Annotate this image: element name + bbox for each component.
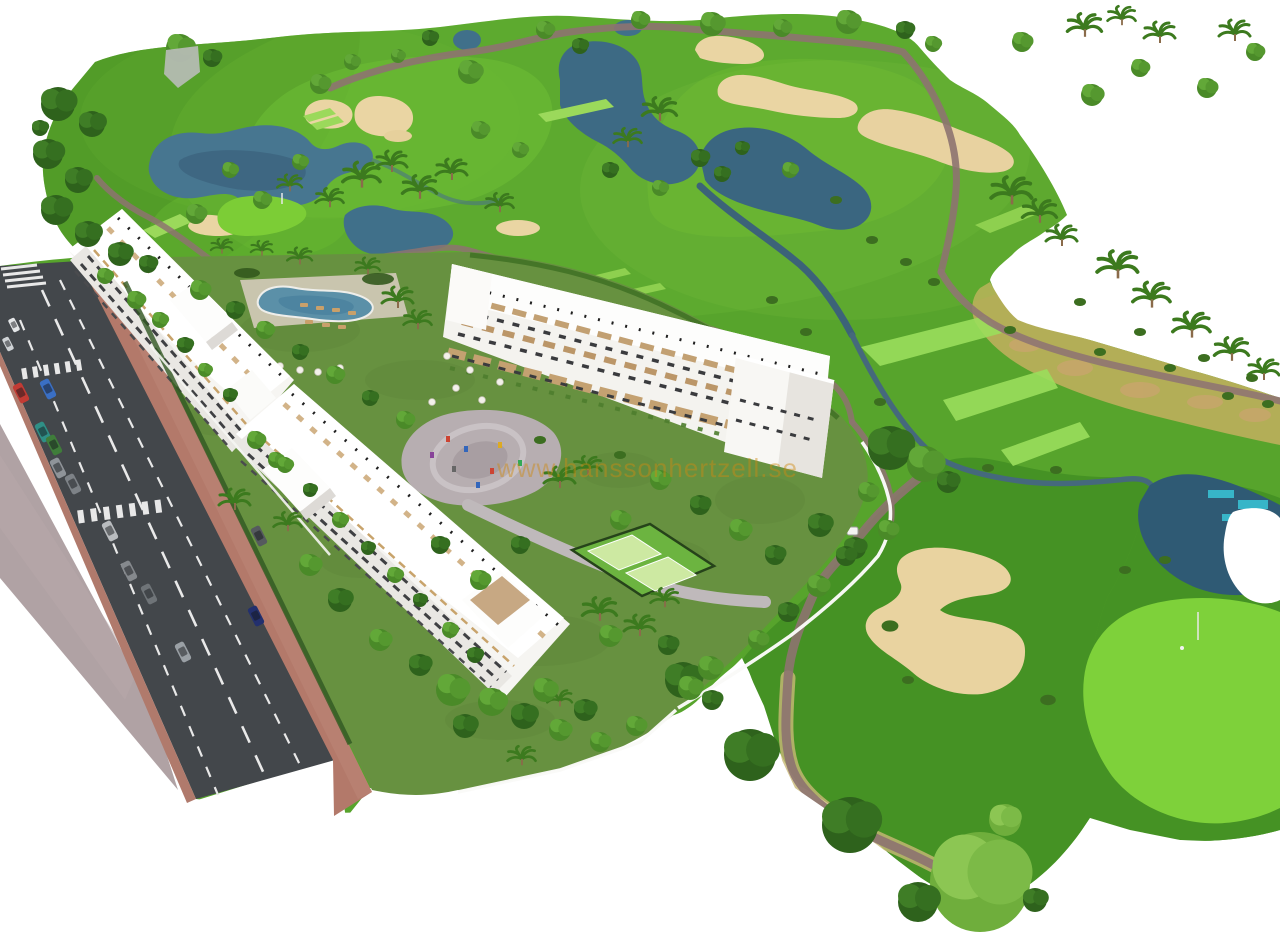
- svg-text:www.hanssonhertzell.se: www.hanssonhertzell.se: [496, 453, 798, 483]
